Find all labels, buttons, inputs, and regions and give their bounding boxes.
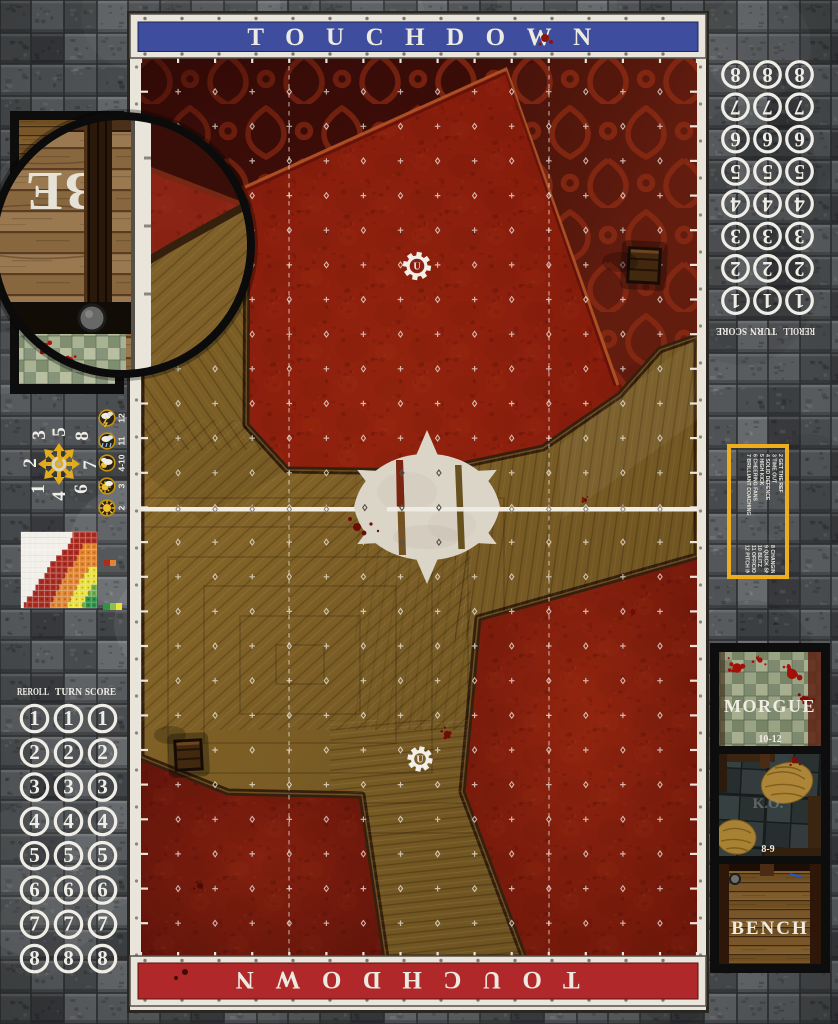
svg-text:REROLL: REROLL xyxy=(783,325,815,336)
svg-text:4: 4 xyxy=(49,491,70,501)
svg-text:4: 4 xyxy=(730,192,741,216)
svg-text:2: 2 xyxy=(63,740,74,764)
svg-text:1: 1 xyxy=(794,289,805,313)
svg-text:8-9: 8-9 xyxy=(761,844,774,855)
svg-text:1: 1 xyxy=(29,706,40,730)
svg-text:3: 3 xyxy=(762,225,773,249)
svg-text:8: 8 xyxy=(97,946,108,970)
svg-text:3: 3 xyxy=(29,430,50,440)
svg-text:6: 6 xyxy=(97,877,108,901)
svg-text:TURN: TURN xyxy=(749,325,777,336)
svg-text:2: 2 xyxy=(730,257,741,281)
svg-text:SCORE: SCORE xyxy=(85,687,116,698)
svg-text:2: 2 xyxy=(762,257,773,281)
svg-text:SCORE: SCORE xyxy=(716,325,747,336)
svg-text:1: 1 xyxy=(28,484,49,494)
svg-text:3 TIME OUT: 3 TIME OUT xyxy=(771,454,777,484)
svg-text:1: 1 xyxy=(730,289,741,313)
svg-text:U: U xyxy=(413,261,420,272)
svg-text:5 HIGH KICK: 5 HIGH KICK xyxy=(758,454,764,486)
svg-text:5: 5 xyxy=(29,843,40,867)
svg-text:4: 4 xyxy=(97,809,108,833)
svg-text:1: 1 xyxy=(97,706,108,730)
svg-text:6: 6 xyxy=(29,877,40,901)
svg-text:7 BRILLIANT COACHING: 7 BRILLIANT COACHING xyxy=(745,454,751,515)
svg-text:7: 7 xyxy=(794,95,805,119)
svg-text:BENCH: BENCH xyxy=(731,918,809,939)
svg-text:8: 8 xyxy=(63,946,74,970)
svg-text:10-12: 10-12 xyxy=(758,734,781,745)
svg-text:TURN: TURN xyxy=(55,687,83,698)
svg-text:6: 6 xyxy=(71,484,92,494)
svg-text:8: 8 xyxy=(730,63,741,87)
svg-text:2: 2 xyxy=(97,740,108,764)
svg-text:3: 3 xyxy=(29,775,40,799)
svg-text:4: 4 xyxy=(29,809,40,833)
svg-text:5: 5 xyxy=(63,843,74,867)
svg-text:8: 8 xyxy=(794,63,805,87)
svg-text:6: 6 xyxy=(730,128,741,152)
svg-text:3: 3 xyxy=(794,225,805,249)
svg-text:5: 5 xyxy=(794,160,805,184)
svg-text:MORGUE: MORGUE xyxy=(724,696,816,716)
svg-text:TOUCHDOWN: TOUCHDOWN xyxy=(214,966,579,993)
svg-text:2: 2 xyxy=(29,740,40,764)
svg-text:6: 6 xyxy=(63,877,74,901)
svg-text:12: 12 xyxy=(117,413,127,423)
svg-text:2: 2 xyxy=(117,505,127,510)
svg-text:5: 5 xyxy=(730,160,741,184)
svg-text:4: 4 xyxy=(63,809,74,833)
svg-text:REROLL: REROLL xyxy=(17,687,49,698)
svg-text:3: 3 xyxy=(63,775,74,799)
svg-text:11: 11 xyxy=(117,436,127,445)
svg-text:5: 5 xyxy=(762,160,773,184)
svg-text:4: 4 xyxy=(762,192,773,216)
svg-text:5: 5 xyxy=(97,843,108,867)
svg-text:8: 8 xyxy=(29,946,40,970)
svg-text:7: 7 xyxy=(97,912,108,936)
svg-text:5: 5 xyxy=(49,427,70,437)
svg-text:8: 8 xyxy=(72,431,93,441)
svg-text:2 GET THE REF: 2 GET THE REF xyxy=(777,454,783,493)
svg-text:3: 3 xyxy=(117,483,127,488)
svg-text:2: 2 xyxy=(20,458,41,468)
svg-text:TOUCHDOWN: TOUCHDOWN xyxy=(247,24,612,51)
svg-text:4-10: 4-10 xyxy=(117,454,127,471)
svg-text:3: 3 xyxy=(97,775,108,799)
svg-text:8: 8 xyxy=(762,63,773,87)
svg-text:7: 7 xyxy=(762,95,773,119)
svg-text:6: 6 xyxy=(794,128,805,152)
svg-text:7: 7 xyxy=(730,95,741,119)
svg-text:10 BLITZ: 10 BLITZ xyxy=(756,545,762,568)
svg-text:U: U xyxy=(416,754,423,765)
svg-text:7: 7 xyxy=(29,912,40,936)
svg-text:7: 7 xyxy=(63,912,74,936)
svg-text:1: 1 xyxy=(63,706,74,730)
svg-text:3: 3 xyxy=(730,225,741,249)
svg-text:6: 6 xyxy=(762,128,773,152)
svg-text:2: 2 xyxy=(794,257,805,281)
svg-text:1: 1 xyxy=(762,289,773,313)
svg-text:4 SOLID DEFENCE: 4 SOLID DEFENCE xyxy=(764,454,770,501)
svg-text:7: 7 xyxy=(80,460,101,470)
svg-text:K.O.: K.O. xyxy=(753,796,784,812)
svg-text:4: 4 xyxy=(794,192,805,216)
svg-text:6 CHEERING FANS: 6 CHEERING FANS xyxy=(751,454,757,502)
